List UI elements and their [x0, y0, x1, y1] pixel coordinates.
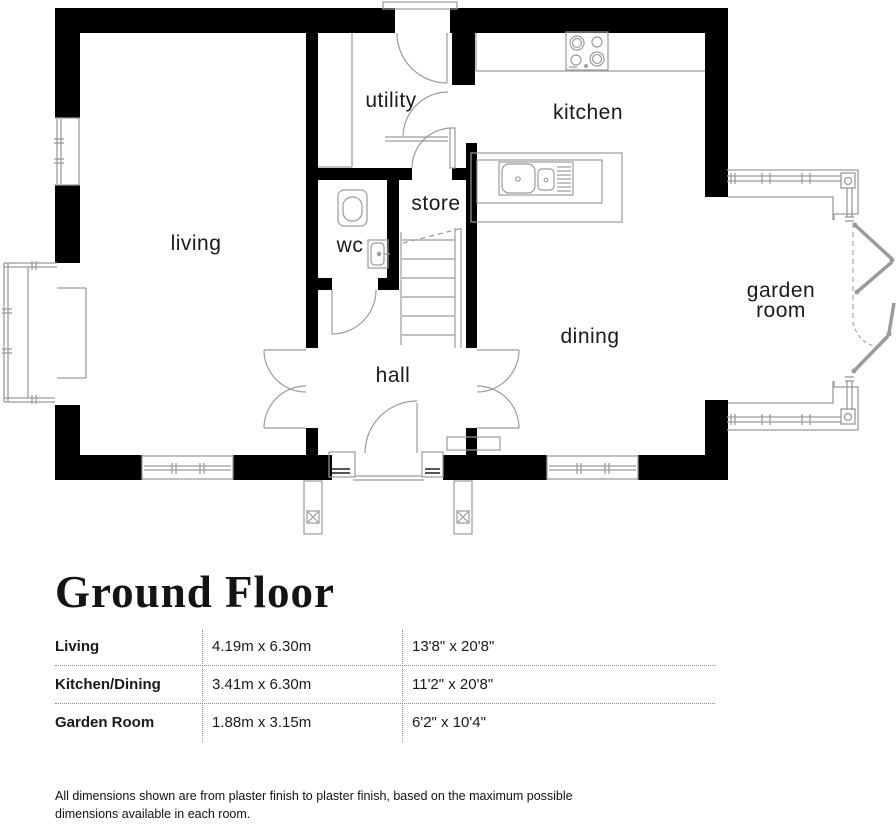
bay-window	[2, 261, 86, 404]
floorplan-page: living utility kitchen store wc hall din…	[0, 0, 896, 824]
disclaimer-line: dimensions available in each room.	[55, 805, 615, 823]
imperial-size-cell: 13'8" x 20'8"	[412, 638, 715, 655]
living-label: living	[171, 232, 222, 255]
metric-size-cell: 1.88m x 3.15m	[212, 714, 412, 731]
table-divider	[402, 630, 403, 742]
dining-label: dining	[560, 325, 619, 348]
utility-label: utility	[365, 89, 416, 112]
sink-island	[471, 153, 622, 222]
metric-size-cell: 3.41m x 6.30m	[212, 676, 412, 693]
table-row: Living 4.19m x 6.30m 13'8" x 20'8"	[55, 628, 715, 666]
wc-label: wc	[336, 234, 364, 257]
floor-plan-drawing: living utility kitchen store wc hall din…	[0, 0, 896, 545]
table-row: Garden Room 1.88m x 3.15m 6'2" x 10'4"	[55, 704, 715, 741]
metric-size-cell: 4.19m x 6.30m	[212, 638, 412, 655]
hob-fixture	[566, 32, 608, 70]
hall-living-double-doors	[264, 350, 306, 428]
room-name-cell: Garden Room	[55, 714, 212, 731]
bifold-doors	[852, 223, 894, 373]
garden-room-label-line2: room	[756, 299, 806, 322]
disclaimer-text: All dimensions shown are from plaster fi…	[55, 787, 615, 823]
wc-door	[332, 290, 376, 334]
left-wall-window	[54, 118, 80, 185]
page-title: Ground Floor	[55, 566, 335, 618]
basin-fixture	[368, 240, 390, 268]
stairs	[401, 228, 463, 348]
imperial-size-cell: 11'2" x 20'8"	[412, 676, 715, 693]
kitchen-worktop	[476, 33, 705, 71]
kitchen-label: kitchen	[553, 101, 623, 124]
dimensions-table: Living 4.19m x 6.30m 13'8" x 20'8" Kitch…	[55, 628, 715, 741]
imperial-size-cell: 6'2" x 10'4"	[412, 714, 715, 731]
room-name-cell: Kitchen/Dining	[55, 676, 212, 693]
table-divider	[202, 630, 203, 742]
front-door	[329, 401, 443, 480]
room-name-cell: Living	[55, 638, 212, 655]
table-row: Kitchen/Dining 3.41m x 6.30m 11'2" x 20'…	[55, 666, 715, 704]
dining-bottom-window	[547, 455, 638, 480]
store-door	[412, 128, 455, 168]
disclaimer-line: All dimensions shown are from plaster fi…	[55, 787, 615, 805]
toilet-fixture	[338, 190, 367, 226]
hall-label: hall	[376, 364, 411, 387]
utility-worktop	[318, 33, 352, 167]
hall-dining-double-doors	[477, 350, 519, 428]
living-bottom-window	[142, 455, 233, 480]
store-label: store	[411, 192, 460, 215]
